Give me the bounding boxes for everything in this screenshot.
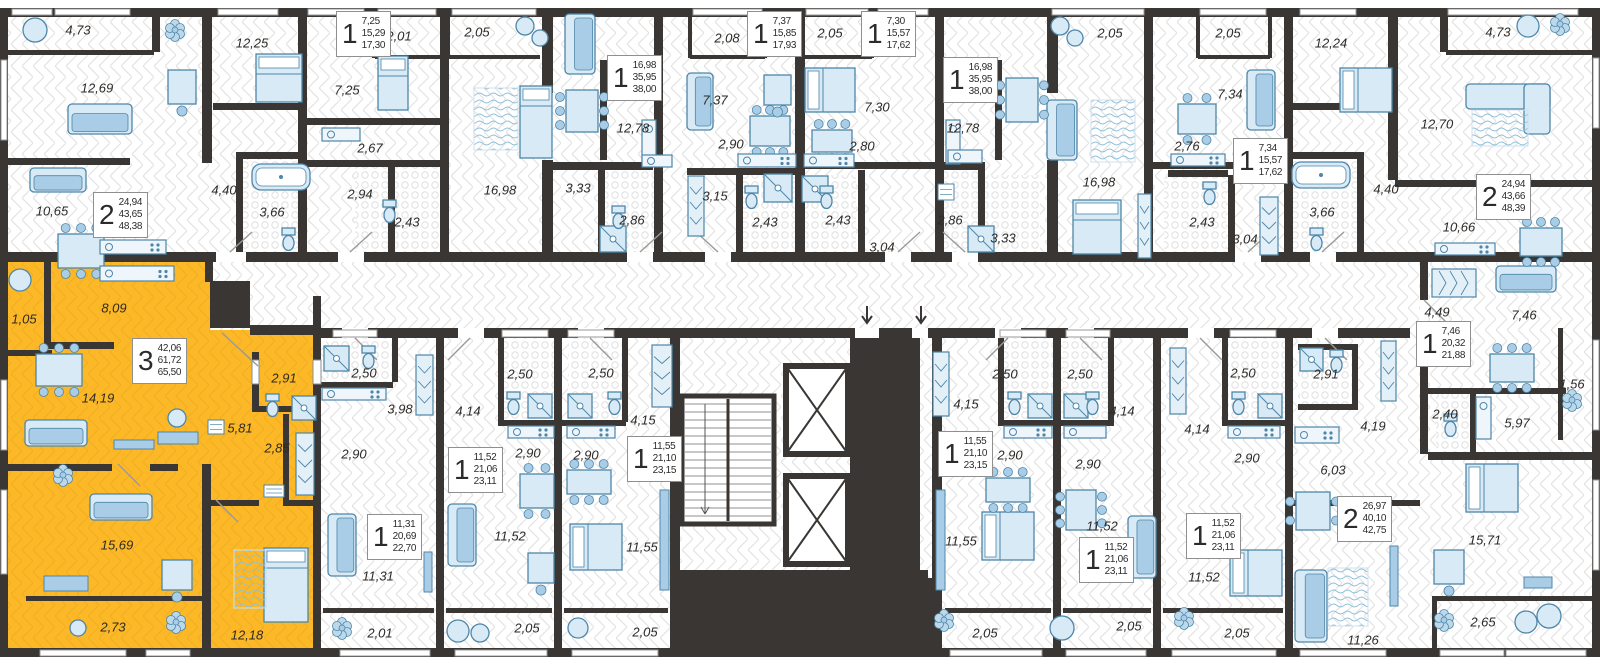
toilet-icon — [1330, 350, 1343, 373]
apartment-area-value: 17,30 — [362, 40, 386, 52]
sofa-icon — [1295, 570, 1327, 642]
toilet-icon — [1444, 414, 1457, 437]
toilet-icon — [266, 394, 279, 417]
apartment-area-value: 17,62 — [1259, 167, 1283, 179]
circle-icon — [1517, 15, 1539, 37]
bed-icon — [378, 56, 408, 110]
wardrobe-icon — [416, 355, 433, 415]
sofa-icon — [68, 104, 132, 134]
apartment-area-value: 61,72 — [158, 355, 182, 367]
circle-icon — [1515, 611, 1537, 633]
apartment-areas: 24,9443,6548,38 — [119, 197, 143, 233]
apartment-badge[interactable]: 17,3715,8517,93 — [747, 11, 802, 57]
apartment-area-value: 23,11 — [1105, 566, 1129, 578]
wardrobe-icon — [296, 433, 314, 495]
counter-icon — [642, 155, 672, 167]
apartment-areas: 11,5521,1023,15 — [653, 441, 677, 477]
apartment-area-value: 21,88 — [1442, 350, 1466, 362]
wardrobe-icon — [1260, 197, 1278, 255]
apartment-rooms-count: 1 — [1085, 546, 1101, 574]
apartment-rooms-count: 1 — [1239, 147, 1255, 175]
apartment-area-value: 7,34 — [1259, 143, 1283, 155]
apartment-area-value: 20,69 — [393, 531, 417, 543]
apartment-area-value: 16,98 — [633, 60, 657, 72]
apartment-area-value: 42,75 — [1363, 525, 1387, 537]
apartment-rooms-count: 1 — [949, 66, 965, 94]
apartment-area-value: 11,31 — [393, 519, 417, 531]
table-icon — [1490, 344, 1534, 393]
apartment-badge[interactable]: 111,5521,1023,15 — [627, 436, 682, 482]
staircase — [682, 396, 774, 524]
apartment-areas: 26,9740,1042,75 — [1363, 501, 1387, 537]
toilet-icon — [1203, 182, 1216, 205]
cabinet-icon — [114, 440, 154, 449]
tub-icon — [1292, 162, 1350, 188]
apartment-area-value: 11,52 — [1212, 518, 1236, 530]
apartment-area-value: 48,39 — [1502, 203, 1526, 215]
apartment-badge-selected[interactable]: 342,0661,7265,50 — [132, 338, 187, 384]
apartment-areas: 16,9835,9538,00 — [633, 60, 657, 96]
apartment-area-value: 22,70 — [393, 543, 417, 555]
apartment-badge[interactable]: 111,5521,1023,15 — [938, 431, 993, 477]
cabinet-icon — [1524, 577, 1552, 588]
apartment-areas: 7,3415,5717,62 — [1259, 143, 1283, 179]
counter-icon — [738, 154, 796, 167]
sofa-icon — [1496, 266, 1556, 292]
toilet-icon — [1232, 392, 1245, 415]
counter-icon — [948, 150, 982, 163]
apartment-area-value: 35,95 — [969, 74, 993, 86]
cabinet-icon — [158, 432, 198, 444]
apartment-area-value: 38,00 — [969, 86, 993, 98]
circle-icon — [1067, 30, 1083, 46]
apartment-area-value: 38,00 — [633, 84, 657, 96]
apartment-badge[interactable]: 111,5221,0623,11 — [448, 447, 503, 493]
counter-icon — [100, 240, 166, 254]
sofa-icon — [1047, 100, 1077, 160]
counter-icon — [1171, 154, 1225, 166]
bed-icon — [982, 512, 1034, 560]
wardrobe-icon — [1432, 269, 1476, 297]
apartment-area-value: 23,11 — [474, 476, 498, 488]
apartment-rooms-count: 2 — [1343, 505, 1359, 533]
sofa-icon — [565, 14, 595, 74]
apartment-area-value: 24,94 — [119, 197, 143, 209]
bed-icon — [520, 86, 552, 158]
apartment-rooms-count: 1 — [1192, 522, 1208, 550]
rug-icon — [474, 88, 518, 150]
sofa-icon — [90, 494, 152, 520]
counter-icon — [1476, 397, 1491, 439]
toilet-icon — [608, 392, 621, 415]
apartment-rooms-count: 1 — [753, 20, 769, 48]
shower-icon — [528, 394, 552, 418]
apartment-areas: 11,3120,6922,70 — [393, 519, 417, 555]
apartment-area-value: 26,97 — [1363, 501, 1387, 513]
apartment-area-value: 42,06 — [158, 343, 182, 355]
bed-icon — [805, 68, 855, 112]
apartment-area-value: 15,57 — [1259, 155, 1283, 167]
apartment-area-value: 40,10 — [1363, 513, 1387, 525]
apartment-rooms-count: 3 — [138, 347, 154, 375]
apartment-area-value: 17,62 — [887, 40, 911, 52]
apartment-badge[interactable]: 111,5221,0623,11 — [1079, 537, 1134, 583]
table-icon — [996, 78, 1049, 122]
sofa-icon — [328, 514, 356, 576]
circle-icon — [1537, 604, 1561, 628]
shower-icon — [1028, 394, 1052, 418]
apartment-area-value: 15,85 — [773, 28, 797, 40]
cabinet-icon — [1390, 546, 1398, 606]
elevator-shaft — [786, 366, 848, 454]
apartment-area-value: 11,52 — [1105, 542, 1129, 554]
apartment-badge[interactable]: 224,9443,6548,38 — [93, 192, 148, 238]
apartment-area-value: 11,52 — [474, 452, 498, 464]
apartment-area-value: 35,95 — [633, 72, 657, 84]
circle-icon — [9, 269, 31, 291]
toilet-icon — [1008, 392, 1021, 415]
apartment-area-value: 21,06 — [474, 464, 498, 476]
apartment-area-value: 7,25 — [362, 16, 386, 28]
apartment-area-value: 65,50 — [158, 367, 182, 379]
apartment-area-value: 23,11 — [1212, 542, 1236, 554]
circle-icon — [1051, 17, 1069, 35]
rug-icon — [1091, 100, 1135, 162]
table-icon — [36, 344, 82, 397]
toilet-icon — [1310, 228, 1323, 251]
apartment-rooms-count: 1 — [633, 445, 649, 473]
shower-icon — [292, 396, 316, 420]
apartment-area-value: 7,30 — [887, 16, 911, 28]
cabinet-icon — [424, 552, 432, 592]
apartment-area-value: 21,10 — [964, 448, 988, 460]
shower-icon — [1300, 348, 1323, 371]
wardrobe-icon — [1138, 194, 1151, 258]
bed-icon — [256, 54, 302, 102]
apartment-area-value: 15,29 — [362, 28, 386, 40]
floor-plan: 4,7312,6912,252,017,252,672,942,434,403,… — [0, 0, 1600, 664]
circle-icon — [532, 30, 548, 46]
apartment-area-value: 21,06 — [1212, 530, 1236, 542]
apartment-area-value: 20,32 — [1442, 338, 1466, 350]
shower-icon — [324, 346, 349, 371]
table-icon — [1056, 490, 1107, 530]
apartment-area-value: 23,15 — [964, 460, 988, 472]
apartment-badge[interactable]: 116,9835,9538,00 — [943, 57, 998, 103]
apartment-badge[interactable]: 111,3120,6922,70 — [367, 514, 422, 560]
table-icon — [750, 106, 790, 157]
shower-icon — [1258, 394, 1282, 418]
cabinet-icon — [660, 490, 669, 590]
apartment-areas: 7,2515,2917,30 — [362, 16, 386, 52]
apartment-area-value: 7,46 — [1442, 326, 1466, 338]
apartment-area-value: 7,37 — [773, 16, 797, 28]
rug-icon — [1328, 568, 1368, 626]
circle-icon — [70, 620, 86, 636]
counter-icon — [804, 154, 854, 167]
wardrobe-icon — [1170, 348, 1186, 414]
rug-icon — [234, 550, 266, 608]
sofa-icon — [448, 504, 476, 566]
apartment-area-value: 23,15 — [653, 465, 677, 477]
counter-icon — [1295, 427, 1339, 443]
counter-icon — [1435, 243, 1495, 255]
apartment-area-value: 24,94 — [1502, 179, 1526, 191]
circle-icon — [568, 618, 588, 638]
bed-icon — [1340, 68, 1392, 112]
apartment-rooms-count: 1 — [454, 456, 470, 484]
apartment-badge[interactable]: 116,9835,9538,00 — [607, 55, 662, 101]
cabinet-icon — [936, 490, 945, 590]
sofa-icon — [25, 420, 87, 446]
circle-icon — [168, 409, 186, 427]
apartment-rooms-count: 1 — [1422, 330, 1438, 358]
shower-icon — [600, 226, 626, 252]
cabinet-icon — [44, 576, 88, 591]
apartment-area-value: 21,10 — [653, 453, 677, 465]
apartment-area-value: 43,66 — [1502, 191, 1526, 203]
apartment-areas: 11,5521,1023,15 — [964, 436, 988, 472]
shower-icon — [968, 226, 994, 252]
grille-icon — [938, 184, 954, 200]
bed-icon — [1073, 200, 1121, 254]
circle-icon — [471, 624, 489, 642]
apartment-areas: 11,5221,0623,11 — [1212, 518, 1236, 554]
rug-icon — [1472, 110, 1528, 146]
grille-icon — [264, 485, 284, 497]
apartment-area-value: 11,55 — [653, 441, 677, 453]
apartment-badge[interactable]: 17,4620,3221,88 — [1416, 321, 1471, 367]
circle-icon — [1050, 616, 1074, 640]
apartment-badge[interactable]: 17,3015,5717,62 — [861, 11, 916, 57]
apartment-areas: 7,4620,3221,88 — [1442, 326, 1466, 362]
apartment-rooms-count: 1 — [342, 20, 358, 48]
table-icon — [1520, 218, 1562, 267]
counter-icon — [1064, 426, 1106, 438]
toilet-icon — [383, 200, 396, 223]
toilet-icon — [820, 186, 833, 209]
apartment-rooms-count: 1 — [613, 64, 629, 92]
toilet-icon — [362, 346, 375, 369]
counter-icon — [322, 128, 360, 141]
apartment-areas: 11,5221,0623,11 — [1105, 542, 1129, 578]
apartment-badge[interactable]: 226,9740,1042,75 — [1337, 496, 1392, 542]
apartment-area-value: 17,93 — [773, 40, 797, 52]
wardrobe-icon — [652, 345, 672, 407]
bed-icon — [570, 524, 622, 570]
apartment-area-value: 15,57 — [887, 28, 911, 40]
counter-icon — [1228, 426, 1280, 438]
toilet-icon — [612, 206, 625, 229]
apartment-area-value: 43,65 — [119, 209, 143, 221]
apartment-area-value: 11,55 — [964, 436, 988, 448]
counter-icon — [1004, 426, 1052, 438]
apartment-badge[interactable]: 111,5221,0623,11 — [1186, 513, 1241, 559]
circle-icon — [447, 620, 469, 642]
table-icon — [556, 90, 609, 132]
grille-icon — [208, 420, 224, 434]
wardrobe-icon — [1381, 341, 1396, 401]
apartment-areas: 7,3015,5717,62 — [887, 16, 911, 52]
circle-icon — [516, 17, 534, 35]
apartment-badge[interactable]: 17,3415,5717,62 — [1233, 138, 1288, 184]
wardrobe-icon — [688, 176, 704, 236]
floor-plan-graphics — [0, 0, 1600, 664]
apartment-area-value: 21,06 — [1105, 554, 1129, 566]
apartment-rooms-count: 1 — [867, 20, 883, 48]
shower-icon — [568, 394, 592, 418]
toilet-icon — [282, 228, 295, 251]
apartment-area-value: 48,38 — [119, 221, 143, 233]
apartment-areas: 11,5221,0623,11 — [474, 452, 498, 488]
counter-icon — [100, 266, 174, 281]
apartment-rooms-count: 2 — [99, 201, 115, 229]
circle-icon — [23, 18, 47, 42]
apartment-rooms-count: 1 — [944, 440, 960, 468]
sofa-icon — [30, 168, 86, 192]
apartment-area-value: 16,98 — [969, 62, 993, 74]
sofa-icon — [1247, 70, 1275, 130]
bed-icon — [264, 548, 308, 622]
elevator-shaft — [786, 476, 848, 564]
bed-icon — [1466, 464, 1518, 512]
apartment-areas: 24,9443,6648,39 — [1502, 179, 1526, 215]
toilet-icon — [1086, 392, 1099, 415]
toilet-icon — [507, 392, 520, 415]
counter-icon — [322, 388, 386, 400]
apartment-rooms-count: 2 — [1482, 183, 1498, 211]
apartment-areas: 42,0661,7265,50 — [158, 343, 182, 379]
apartment-areas: 7,3715,8517,93 — [773, 16, 797, 52]
shower-icon — [1064, 394, 1088, 418]
sofa-icon — [687, 73, 713, 130]
wardrobe-icon — [933, 352, 949, 416]
table-icon — [567, 460, 611, 505]
apartment-rooms-count: 1 — [373, 523, 389, 551]
apartment-areas: 16,9835,9538,00 — [969, 62, 993, 98]
apartment-badge[interactable]: 224,9443,6648,39 — [1476, 174, 1531, 220]
counter-icon — [567, 426, 615, 438]
tub-icon — [252, 164, 310, 190]
shower-icon — [764, 174, 792, 202]
apartment-badge[interactable]: 17,2515,2917,30 — [336, 11, 391, 57]
toilet-icon — [745, 186, 758, 209]
counter-icon — [508, 426, 554, 438]
